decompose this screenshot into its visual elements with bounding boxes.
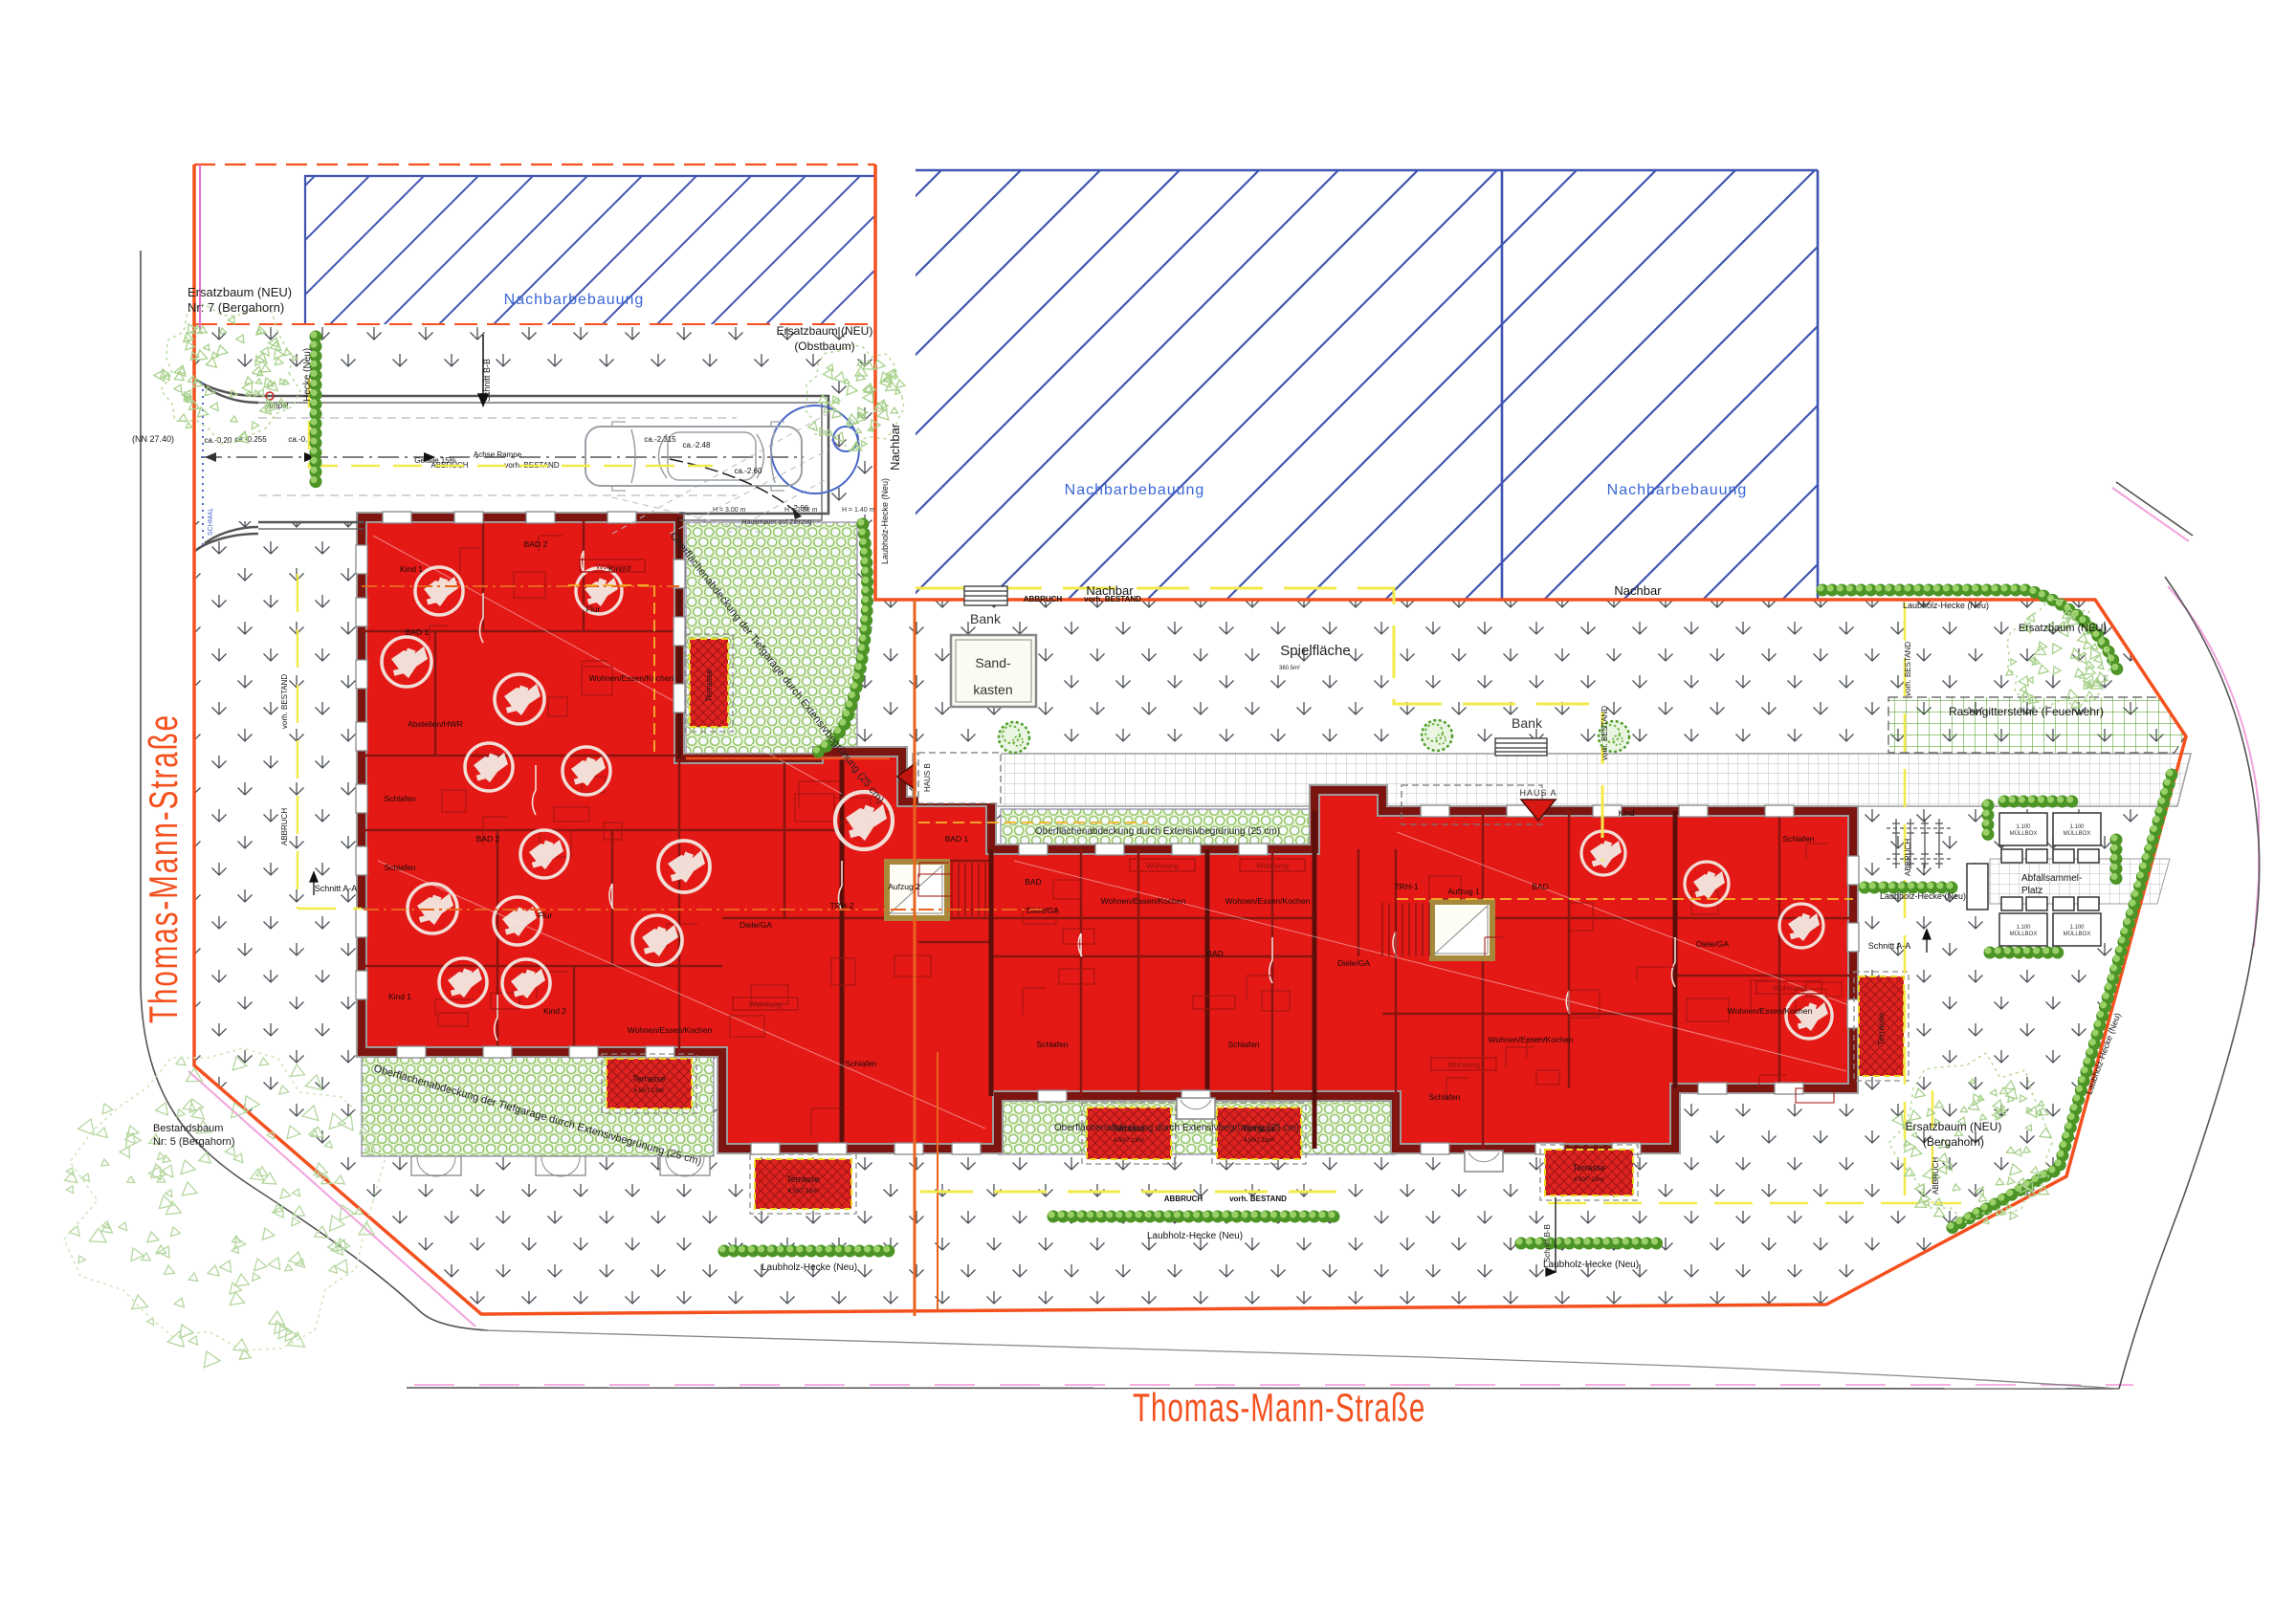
svg-text:Nachbarbebauung: Nachbarbebauung <box>1607 482 1748 498</box>
svg-text:Wohnen/Essen/Kochen: Wohnen/Essen/Kochen <box>1101 896 1186 906</box>
svg-text:Rasengittersteine (Feuerwehr): Rasengittersteine (Feuerwehr) <box>1949 705 2104 718</box>
svg-text:Schnitt B-B: Schnitt B-B <box>1543 1224 1552 1262</box>
svg-text:SCHMAL: SCHMAL <box>208 508 214 536</box>
svg-text:ca.-2.60: ca.-2.60 <box>735 467 762 475</box>
svg-text:(NN 27.40): (NN 27.40) <box>132 434 174 444</box>
svg-text:Schlafen: Schlafen <box>1036 1040 1068 1049</box>
svg-text:Laubholz-Hecke (Neu): Laubholz-Hecke (Neu) <box>1543 1260 1639 1270</box>
svg-text:Thomas-Mann-Straße: Thomas-Mann-Straße <box>141 713 186 1023</box>
svg-text:kasten: kasten <box>973 682 1012 697</box>
svg-text:Diele/GA: Diele/GA <box>1337 958 1370 968</box>
svg-text:Hecke (Neu): Hecke (Neu) <box>302 348 313 402</box>
svg-text:BAD: BAD <box>1206 949 1223 958</box>
svg-text:Wohnen/Essen/Kochen: Wohnen/Essen/Kochen <box>1225 896 1311 906</box>
svg-text:Abfallsammel-: Abfallsammel- <box>2021 873 2082 884</box>
svg-text:Schnitt A-A: Schnitt A-A <box>1868 941 1911 951</box>
svg-text:Bestandsbaum: Bestandsbaum <box>153 1123 223 1134</box>
svg-text:(Obstbaum): (Obstbaum) <box>794 340 854 353</box>
svg-text:Ersatzbaum (NEU): Ersatzbaum (NEU) <box>188 285 292 299</box>
svg-text:ABBRUCH: ABBRUCH <box>1024 595 1063 603</box>
svg-text:Wohnung: Wohnung <box>596 562 629 571</box>
svg-text:BAD 2: BAD 2 <box>476 834 500 844</box>
svg-text:Sand-: Sand- <box>975 655 1011 670</box>
svg-text:MÜLLBOX: MÜLLBOX <box>2010 830 2038 837</box>
svg-text:Wohnen/Essen/Kochen: Wohnen/Essen/Kochen <box>628 1025 713 1035</box>
svg-text:BAD: BAD <box>1025 877 1041 887</box>
svg-text:360.5m²: 360.5m² <box>1279 666 1300 671</box>
svg-text:BAD 2: BAD 2 <box>524 539 548 549</box>
svg-text:Gefälle 15%: Gefälle 15% <box>414 456 456 465</box>
svg-text:Diele/GA: Diele/GA <box>1696 939 1729 949</box>
svg-text:Terrasse: Terrasse <box>1877 1012 1887 1045</box>
svg-text:ABBRUCH: ABBRUCH <box>1164 1195 1203 1203</box>
svg-text:Schlafen: Schlafen <box>845 1059 876 1068</box>
svg-text:Oberflächenabdeckung durch Ext: Oberflächenabdeckung durch Extensivbegrü… <box>1035 826 1280 837</box>
svg-text:Nr: 5 (Bergahorn): Nr: 5 (Bergahorn) <box>153 1136 235 1148</box>
svg-text:Nachbarbebauung: Nachbarbebauung <box>1065 482 1205 498</box>
svg-text:Bank: Bank <box>970 611 1002 626</box>
svg-text:Wohnung: Wohnung <box>1256 862 1289 870</box>
svg-text:ca.-2.315: ca.-2.315 <box>644 435 676 444</box>
svg-text:HAUS B: HAUS B <box>923 763 932 792</box>
svg-text:4.50/7.13m²: 4.50/7.13m² <box>787 1189 818 1195</box>
svg-text:TRH-1: TRH-1 <box>1394 882 1418 891</box>
svg-text:4.50/7.13m²: 4.50/7.13m² <box>633 1088 664 1094</box>
svg-text:Schlafen: Schlafen <box>384 863 415 872</box>
svg-text:H = 3.00 m: H = 3.00 m <box>713 507 746 514</box>
svg-text:Thomas-Mann-Straße: Thomas-Mann-Straße <box>1133 1385 1425 1430</box>
svg-text:4.50/7.13m²: 4.50/7.13m² <box>1244 1138 1274 1144</box>
svg-text:Laubholz-Hecke (Neu): Laubholz-Hecke (Neu) <box>1147 1231 1243 1241</box>
svg-text:Ersatzbaum (NEU): Ersatzbaum (NEU) <box>2019 623 2107 634</box>
svg-text:H = 1.40 m: H = 1.40 m <box>842 507 875 514</box>
svg-text:ca.-2.48: ca.-2.48 <box>683 441 711 450</box>
svg-text:Laubholz-Hecke (Neu): Laubholz-Hecke (Neu) <box>762 1262 857 1273</box>
svg-text:Hausmauer auf Zierzug: Hausmauer auf Zierzug <box>741 519 811 526</box>
svg-text:Schnitt B-B: Schnitt B-B <box>482 359 492 402</box>
svg-text:4.50/7.13m²: 4.50/7.13m² <box>1574 1177 1604 1183</box>
svg-text:Ersatzbaum (NEU): Ersatzbaum (NEU) <box>777 324 873 338</box>
svg-text:ABBRUCH: ABBRUCH <box>280 808 289 845</box>
svg-text:BAD 1: BAD 1 <box>406 627 430 637</box>
svg-text:vorh. BESTAND: vorh. BESTAND <box>1084 595 1141 603</box>
svg-text:H = 1.50 m: H = 1.50 m <box>784 507 818 514</box>
svg-text:Flur: Flur <box>586 604 601 614</box>
svg-text:BAD: BAD <box>1532 882 1548 891</box>
svg-text:Wohnen/Essen/Kochen: Wohnen/Essen/Kochen <box>589 673 674 683</box>
svg-text:Laubholz-Hecke (Neu): Laubholz-Hecke (Neu) <box>1903 601 1989 610</box>
svg-text:Flur: Flur <box>539 910 553 920</box>
svg-text:Terrasse: Terrasse <box>704 669 714 702</box>
svg-text:Wohnung: Wohnung <box>749 1000 782 1009</box>
svg-text:Spielfläche: Spielfläche <box>1280 643 1350 659</box>
svg-text:Kind 1: Kind 1 <box>400 564 423 574</box>
svg-text:Nachbarbebauung: Nachbarbebauung <box>504 292 645 308</box>
svg-text:Laubholz-Hecke (Neu): Laubholz-Hecke (Neu) <box>1880 891 1966 901</box>
svg-text:Nachbar: Nachbar <box>888 423 902 471</box>
svg-text:Nachbar: Nachbar <box>1614 583 1662 598</box>
svg-text:vorh. BESTAND: vorh. BESTAND <box>1229 1195 1287 1203</box>
svg-text:MÜLLBOX: MÜLLBOX <box>2064 931 2091 937</box>
svg-text:Bank: Bank <box>1512 715 1543 731</box>
svg-text:vorh. BESTAND: vorh. BESTAND <box>1904 642 1912 696</box>
svg-text:Aufzug 1: Aufzug 1 <box>1447 887 1480 896</box>
svg-text:Wohnung: Wohnung <box>1146 862 1179 870</box>
svg-text:Ersatzbaum (NEU): Ersatzbaum (NEU) <box>1906 1120 2002 1133</box>
svg-text:Kind 1: Kind 1 <box>388 992 411 1001</box>
svg-text:(Bergahorn): (Bergahorn) <box>1923 1135 1984 1149</box>
svg-text:MÜLLBOX: MÜLLBOX <box>2064 830 2091 837</box>
svg-text:Terrasse: Terrasse <box>786 1174 820 1184</box>
svg-text:Schlafen: Schlafen <box>1428 1092 1460 1102</box>
svg-text:Wohnung: Wohnung <box>1447 1061 1480 1069</box>
svg-text:Kind 2: Kind 2 <box>543 1006 566 1016</box>
svg-text:Schlafen: Schlafen <box>1782 834 1814 844</box>
svg-text:1.100: 1.100 <box>2069 925 2085 931</box>
svg-text:Wohnung: Wohnung <box>1773 984 1805 993</box>
svg-text:BAD 1: BAD 1 <box>945 834 969 844</box>
svg-text:Schlafen: Schlafen <box>1227 1040 1259 1049</box>
svg-text:4.50/7.13m²: 4.50/7.13m² <box>1114 1138 1144 1144</box>
svg-text:vorh. BESTAND: vorh. BESTAND <box>280 674 289 729</box>
svg-text:Laubholz-Hecke (Neu): Laubholz-Hecke (Neu) <box>880 478 890 564</box>
svg-text:Kind: Kind <box>1618 808 1634 818</box>
svg-text:1.100: 1.100 <box>2016 824 2031 830</box>
svg-text:1.100: 1.100 <box>2069 824 2085 830</box>
svg-text:vorh. BESTAND: vorh. BESTAND <box>1601 706 1609 760</box>
svg-text:HAUS A: HAUS A <box>1519 788 1556 798</box>
svg-text:ABBRUCH: ABBRUCH <box>1904 839 1912 876</box>
svg-text:Oberflächenabdeckung durch Ext: Oberflächenabdeckung durch Extensivbegrü… <box>1054 1123 1299 1133</box>
svg-text:1.100: 1.100 <box>2016 925 2031 931</box>
svg-text:Schlafen: Schlafen <box>384 794 415 803</box>
svg-text:Wohnen/Essen/Kochen: Wohnen/Essen/Kochen <box>1728 1006 1813 1016</box>
svg-text:Abstellen/HWR: Abstellen/HWR <box>408 719 463 729</box>
svg-text:Schnitt A-A: Schnitt A-A <box>315 884 358 893</box>
svg-text:Achse Rampe: Achse Rampe <box>474 450 522 459</box>
svg-text:Wohnen/Essen/Kochen: Wohnen/Essen/Kochen <box>1489 1035 1574 1044</box>
svg-text:Diele/GA: Diele/GA <box>740 920 772 930</box>
svg-text:ABBRUCH: ABBRUCH <box>1932 1157 1940 1195</box>
svg-text:Terrasse: Terrasse <box>1573 1163 1606 1173</box>
svg-text:Terrasse: Terrasse <box>632 1074 666 1084</box>
svg-text:Nr: 7 (Bergahorn): Nr: 7 (Bergahorn) <box>188 300 284 315</box>
svg-text:MÜLLBOX: MÜLLBOX <box>2010 931 2038 937</box>
svg-text:Platz: Platz <box>2021 886 2042 896</box>
